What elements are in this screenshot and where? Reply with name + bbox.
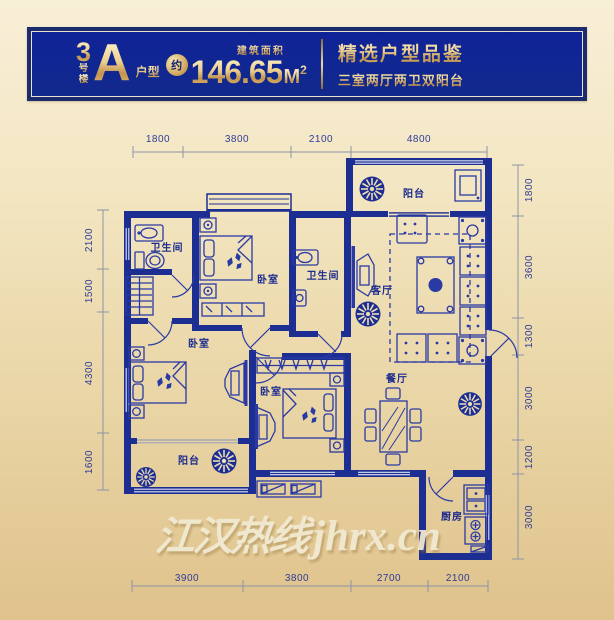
room-label-balcony-south: 阳台 xyxy=(178,454,200,467)
dimension-left: 2100 1500 4300 1600 xyxy=(84,210,109,490)
dimension-top: 1800 3800 2100 4800 xyxy=(133,134,487,158)
dim-top-4: 4800 xyxy=(407,134,431,145)
dining-table-icon xyxy=(365,388,421,465)
dim-left-4: 1600 xyxy=(84,450,95,474)
sink-icon xyxy=(135,225,163,241)
dim-right-6: 3000 xyxy=(524,505,535,529)
appliance-ledge xyxy=(257,481,321,497)
plant-icon xyxy=(360,177,385,202)
tv-cabinet xyxy=(352,246,356,308)
room-label-kitchen: 厨房 xyxy=(441,510,463,523)
room-label-bathroom-a: 卫生间 xyxy=(151,241,184,254)
dim-top-2: 3800 xyxy=(225,134,249,145)
nightstand-icon xyxy=(200,218,216,232)
dim-left-2: 1500 xyxy=(84,279,95,303)
bed-icon xyxy=(283,389,336,438)
sink-icon xyxy=(293,250,318,265)
dim-right-4: 3000 xyxy=(524,386,535,410)
dining-room-furniture xyxy=(365,388,482,465)
dim-bottom-4: 2100 xyxy=(446,573,470,584)
sofa-icon xyxy=(397,334,457,362)
bedroom-a-furniture xyxy=(200,218,264,316)
room-label-living-room: 客厅 xyxy=(370,284,393,297)
room-label-bathroom-b: 卫生间 xyxy=(307,269,340,282)
nightstand-icon xyxy=(129,405,144,418)
plant-icon xyxy=(356,302,381,327)
dresser-icon xyxy=(202,303,264,316)
armchair-icon xyxy=(397,215,427,243)
dim-bottom-3: 2700 xyxy=(377,573,401,584)
floorplan: 1800 3800 2100 4800 3900 3800 2700 2100 … xyxy=(0,0,614,620)
nightstand-icon xyxy=(129,347,144,360)
dim-bottom-1: 3900 xyxy=(175,573,199,584)
nightstand-icon xyxy=(330,373,344,386)
kitchen-sink-icon xyxy=(464,485,488,514)
bed-decor xyxy=(155,372,173,391)
nightstand-icon xyxy=(330,439,344,452)
dim-right-5: 1200 xyxy=(524,445,535,469)
dim-right-1: 1800 xyxy=(524,178,535,202)
toilet-icon xyxy=(135,252,164,269)
bedroom-b-furniture xyxy=(129,347,248,418)
bay-window xyxy=(207,194,291,211)
tv-icon xyxy=(256,407,275,447)
bed-icon xyxy=(200,236,252,280)
rug-outline xyxy=(390,234,470,362)
dim-bottom-2: 3800 xyxy=(285,573,309,584)
dimension-bottom: 3900 3800 2700 2100 xyxy=(132,573,488,592)
plant-icon xyxy=(458,392,482,416)
dim-left-3: 4300 xyxy=(84,361,95,385)
dim-left-1: 2100 xyxy=(84,228,95,252)
room-label-bedroom-c: 卧室 xyxy=(260,385,282,398)
page: 3 号 楼 A 户型 约 建筑面积 146.65 M 2 精选户型品鉴 三室两厅… xyxy=(0,0,614,620)
room-label-balcony-north: 阳台 xyxy=(403,187,425,200)
sofa-icon xyxy=(460,247,486,335)
room-label-bedroom-a: 卧室 xyxy=(257,273,279,286)
walls xyxy=(124,158,492,560)
room-label-bedroom-b: 卧室 xyxy=(188,337,210,350)
side-table-icon xyxy=(459,217,486,244)
tv-icon xyxy=(225,363,244,403)
dim-right-2: 3600 xyxy=(524,255,535,279)
dim-right-3: 1300 xyxy=(524,324,535,348)
coffee-table-icon xyxy=(417,257,454,313)
kitchen-fixtures xyxy=(464,485,488,552)
balcony-south-items xyxy=(136,449,237,488)
water-heater-icon xyxy=(455,170,481,201)
dimension-right: 1800 3600 1300 3000 1200 3000 xyxy=(512,165,535,559)
dim-top-3: 2100 xyxy=(309,134,333,145)
plant-icon xyxy=(136,467,156,487)
bed-decor xyxy=(225,252,243,271)
plant-icon xyxy=(212,449,237,474)
side-table-icon xyxy=(459,337,486,364)
stove-icon xyxy=(465,517,486,544)
dim-top-1: 1800 xyxy=(146,134,170,145)
bed-decor xyxy=(300,406,318,425)
room-label-dining-room: 餐厅 xyxy=(385,372,408,385)
tv-cabinet xyxy=(245,360,248,406)
doors xyxy=(148,275,517,501)
nightstand-icon xyxy=(200,284,216,298)
